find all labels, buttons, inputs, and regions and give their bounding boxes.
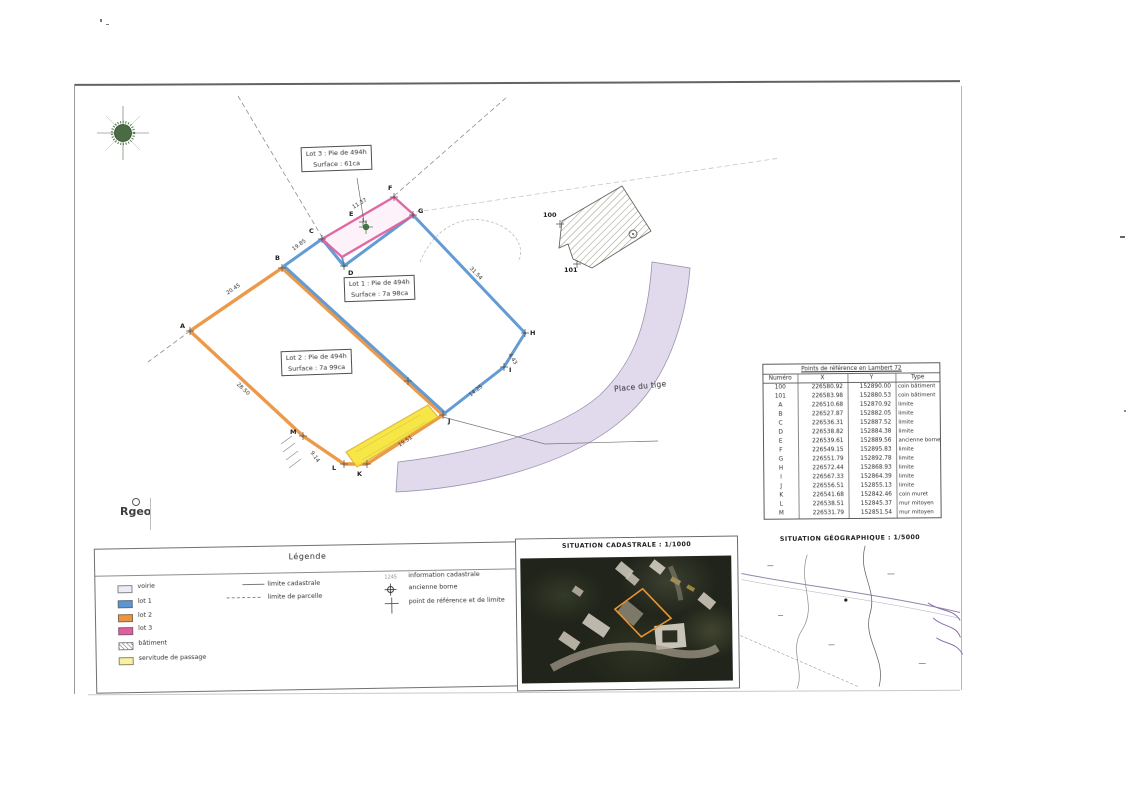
table-cell: 226541.68 [798,491,848,500]
table-cell: 152868.93 [848,464,896,473]
lot1-parcel [284,215,525,413]
table-cell: limite [896,445,940,454]
table-cell: 226538.82 [798,428,848,437]
table-cell: 152855.13 [848,482,896,491]
legend-item-label: limite de parcelle [268,593,323,601]
legend-item-label: point de référence et de limite [409,597,505,606]
table-cell: J [764,482,798,491]
legend-item-label: lot 1 [138,598,152,605]
point-label-D: D [348,269,353,277]
table-cell: 226549.15 [798,446,848,455]
point-label-101: 101 [564,266,578,274]
table-body: 100226580.92152890.00coin bâtiment101226… [763,382,940,519]
table-cell: E [764,437,798,446]
aerial-photo-overlay [520,556,733,684]
situation-geographique-panel: SITUATION GÉOGRAPHIQUE : 1/5000 [737,531,965,691]
lot3-surface: Surface : 61ca [306,158,367,171]
lot2-surface: Surface : 7a 99ca [286,362,347,375]
table-cell: 152892.78 [848,455,896,464]
table-cell: 152889.56 [848,437,896,446]
compass-rose-icon [97,106,149,160]
table-cell: limite [896,472,940,481]
table-row: M226531.79152851.54mur mitoyen [765,508,941,519]
column-header: Numéro [763,374,797,383]
reference-points-table: Points de référence en Lambert 72 Numéro… [762,362,941,520]
table-cell: limite [896,418,940,427]
table-cell: 226527.87 [798,410,848,419]
table-cell: 100 [763,383,797,393]
table-cell: 152887.52 [848,419,896,428]
table-cell: 152880.53 [848,392,896,401]
legend-swatch-road [117,585,132,593]
legend-panel: Légende voirielot 1lot 2lot 3bâtimentser… [94,541,523,693]
table-cell: mur mitoyen [897,499,941,508]
legend-title: Légende [95,548,520,564]
lot3-label-box: Lot 3 : Pie de 494h Surface : 61ca [301,145,373,173]
table-cell: limite [896,427,940,436]
table-cell: limite [896,400,940,409]
table-cell: F [764,446,798,455]
table-cell: 152882.05 [848,410,896,419]
table-cell: 226531.79 [799,509,849,518]
point-label-G: G [418,207,423,215]
table-cell: 152870.92 [848,401,896,410]
table-cell: 226567.33 [798,473,848,482]
building-hatched [559,186,651,268]
table-cell: 226580.92 [797,383,847,393]
table-cell: 152864.39 [848,473,896,482]
table-cell: 152895.83 [848,446,896,455]
table-cell: 152845.37 [849,500,897,509]
point-label-H: H [530,329,535,337]
table-cell: D [764,428,798,437]
table-cell: L [765,500,799,509]
table-cell: A [764,401,798,410]
lot1-surface: Surface : 7a 98ca [349,288,410,301]
table-cell: limite [896,481,940,490]
table-cell: coin muret [896,490,940,499]
cadastral-info-symbol: 1245 [384,574,397,580]
legend-item-label: lot 3 [138,625,152,632]
legend-swatch-lot3 [118,627,133,635]
aerial-photo [520,556,733,684]
point-label-L: L [332,464,336,472]
table-cell: limite [896,454,940,463]
legend-item-label: ancienne borne [408,583,457,591]
ancienne-borne-icon [384,583,396,597]
table-cell: 152884.38 [848,428,896,437]
table-cell: 226539.61 [798,437,848,446]
point-label-J: J [448,417,450,425]
table-cell: I [764,473,798,482]
table-cell: M [765,509,799,518]
legend-line-symbol-dashed [227,597,261,599]
table-cell: coin bâtiment [896,391,940,400]
legend-item-label: information cadastrale [408,571,479,579]
point-label-A: A [180,322,185,330]
reference-cross-icon [385,597,399,615]
lot2-label-box: Lot 2 : Pie de 494h Surface : 7a 99ca [281,349,353,377]
table-cell: G [764,455,798,464]
road-area [396,262,690,492]
table-cell: 152851.54 [849,509,897,518]
lot1-label-box: Lot 1 : Pie de 494h Surface : 7a 98ca [344,275,416,303]
legend-item-label: lot 2 [138,612,152,619]
table-cell: K [764,491,798,500]
point-label-B: B [275,254,280,262]
legend-swatch-lot2 [118,614,133,622]
table-cell: limite [896,463,940,472]
point-label-I: I [509,366,511,374]
table-cell: limite [896,409,940,418]
table-cell: ancienne borne [896,436,940,445]
point-label-K: K [357,470,362,478]
legend-item-label: limite cadastrale [267,580,320,588]
table-cell: 226538.51 [799,500,849,509]
table-cell: C [764,419,798,428]
table-cell: 226572.44 [798,464,848,473]
legend-swatch-servitude [119,657,134,665]
table-cell: 226556.51 [798,482,848,491]
point-label-F: F [388,184,392,192]
legend-swatch-hatch [118,642,133,650]
point-label-E: E [349,210,353,218]
legend-item-label: voirie [137,583,155,590]
bank-hatch-marks [281,436,301,468]
servitude-strip [346,405,438,467]
table-cell: 226510.68 [798,401,848,410]
legend-line-symbol-solid [242,584,264,585]
table-cell: 226536.31 [798,419,848,428]
legend-item-label: bâtiment [138,639,167,646]
point-label-M: M [290,428,296,436]
legend-swatch-lot1 [118,600,133,608]
table-cell: H [764,464,798,473]
logo-fold-line [150,498,151,530]
logo-ring-icon [132,498,140,506]
table-cell: mur mitoyen [897,508,941,517]
point-label-C: C [309,227,314,235]
scanned-cadastral-plan-page: Lot 3 : Pie de 494h Surface : 61ca Lot 1… [0,0,1131,800]
logo-text: Rgeo [120,505,151,518]
column-header: Type [895,373,939,382]
legend-item-label: servitude de passage [139,654,207,662]
table-cell: coin bâtiment [895,382,939,392]
table-cell: B [764,410,798,419]
situation-cadastrale-panel: SITUATION CADASTRALE : 1/1000 [515,535,740,691]
table-cell: 226551.79 [798,455,848,464]
table-cell: 152842.46 [848,491,896,500]
rgeo-logo: Rgeo [120,505,151,518]
table-cell: 152890.00 [847,382,895,392]
table-cell: 226583.98 [798,392,848,401]
geographic-map [737,542,965,691]
point-label-100: 100 [543,211,557,219]
table-cell: 101 [764,392,798,401]
situation-cadastrale-title: SITUATION CADASTRALE : 1/1000 [516,540,737,550]
